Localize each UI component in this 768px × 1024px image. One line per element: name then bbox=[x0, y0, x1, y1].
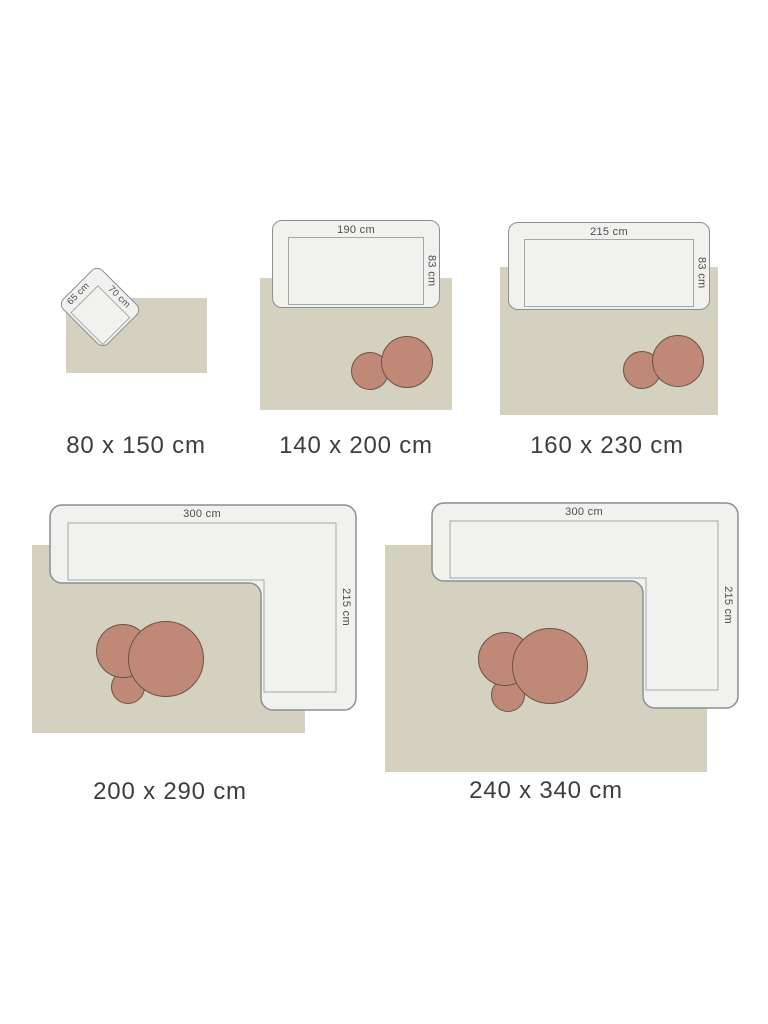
sofa-width-label: 215 cm bbox=[509, 226, 709, 238]
caption-240x340: 240 x 340 cm bbox=[436, 777, 656, 805]
sofa-depth-label: 83 cm bbox=[694, 239, 709, 307]
sofa-depth-label: 83 cm bbox=[424, 237, 439, 305]
caption-140x200: 140 x 200 cm bbox=[246, 432, 466, 460]
caption-200x290: 200 x 290 cm bbox=[60, 778, 280, 806]
corner-sofa-depth-label: 215 cm bbox=[722, 586, 734, 624]
corner-sofa-depth-label: 215 cm bbox=[340, 588, 352, 626]
round-table-large bbox=[381, 336, 433, 388]
rug-size-guide: 65 cm 70 cm 80 x 150 cm 190 cm 83 cm 140… bbox=[0, 0, 768, 1024]
corner-sofa-outline bbox=[432, 503, 738, 708]
sofa-190: 190 cm 83 cm bbox=[272, 220, 440, 308]
corner-sofa-width-label: 300 cm bbox=[183, 508, 221, 520]
caption-160x230: 160 x 230 cm bbox=[497, 432, 717, 460]
sofa-215: 215 cm 83 cm bbox=[508, 222, 710, 310]
corner-sofa bbox=[50, 505, 356, 710]
round-table-large bbox=[652, 335, 704, 387]
corner-sofa-outline bbox=[50, 505, 356, 710]
sofa-seat bbox=[524, 239, 694, 307]
sofa-width-label: 190 cm bbox=[273, 224, 439, 236]
caption-80x150: 80 x 150 cm bbox=[26, 432, 246, 460]
corner-sofa bbox=[432, 503, 738, 708]
corner-sofa-width-label: 300 cm bbox=[565, 506, 603, 518]
sofa-seat bbox=[288, 237, 424, 305]
